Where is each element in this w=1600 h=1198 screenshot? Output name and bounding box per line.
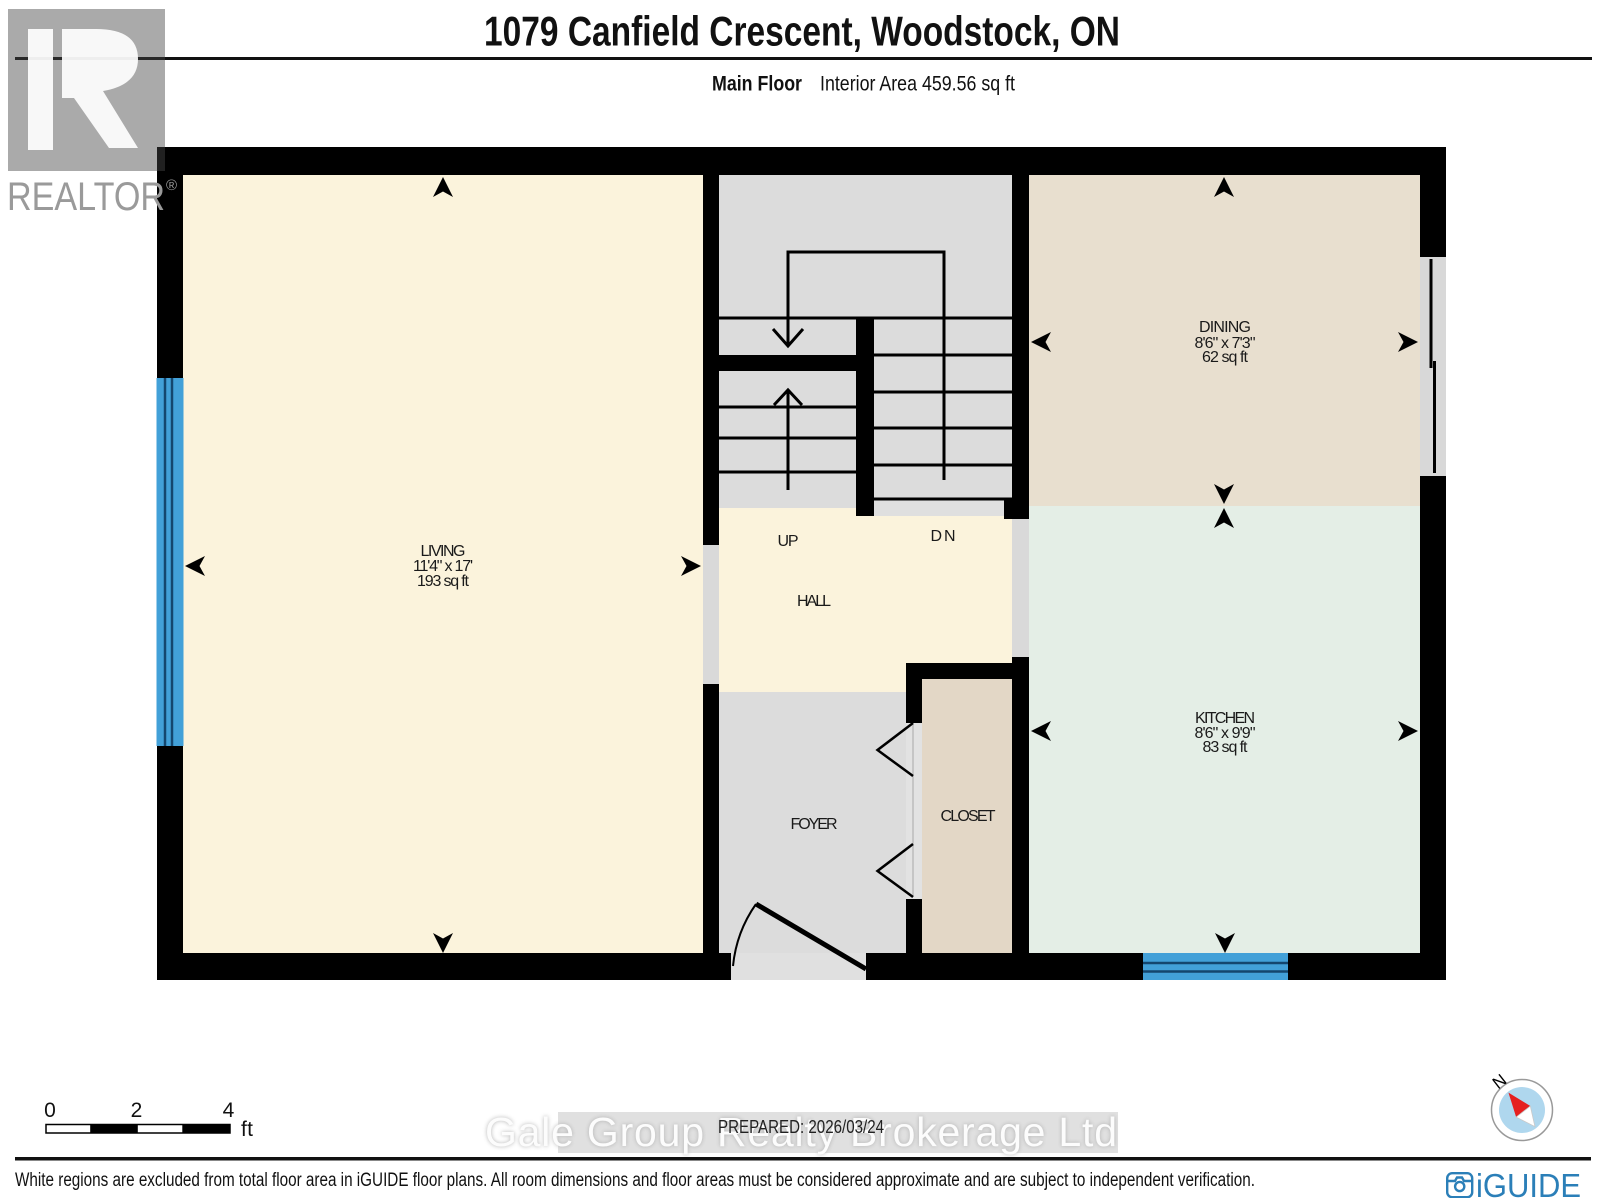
svg-text:iGUIDE: iGUIDE [1476,1167,1581,1198]
svg-text:PREPARED: 2026/03/24: PREPARED: 2026/03/24 [718,1117,884,1137]
svg-text:White regions are excluded fro: White regions are excluded from total fl… [15,1170,1255,1191]
